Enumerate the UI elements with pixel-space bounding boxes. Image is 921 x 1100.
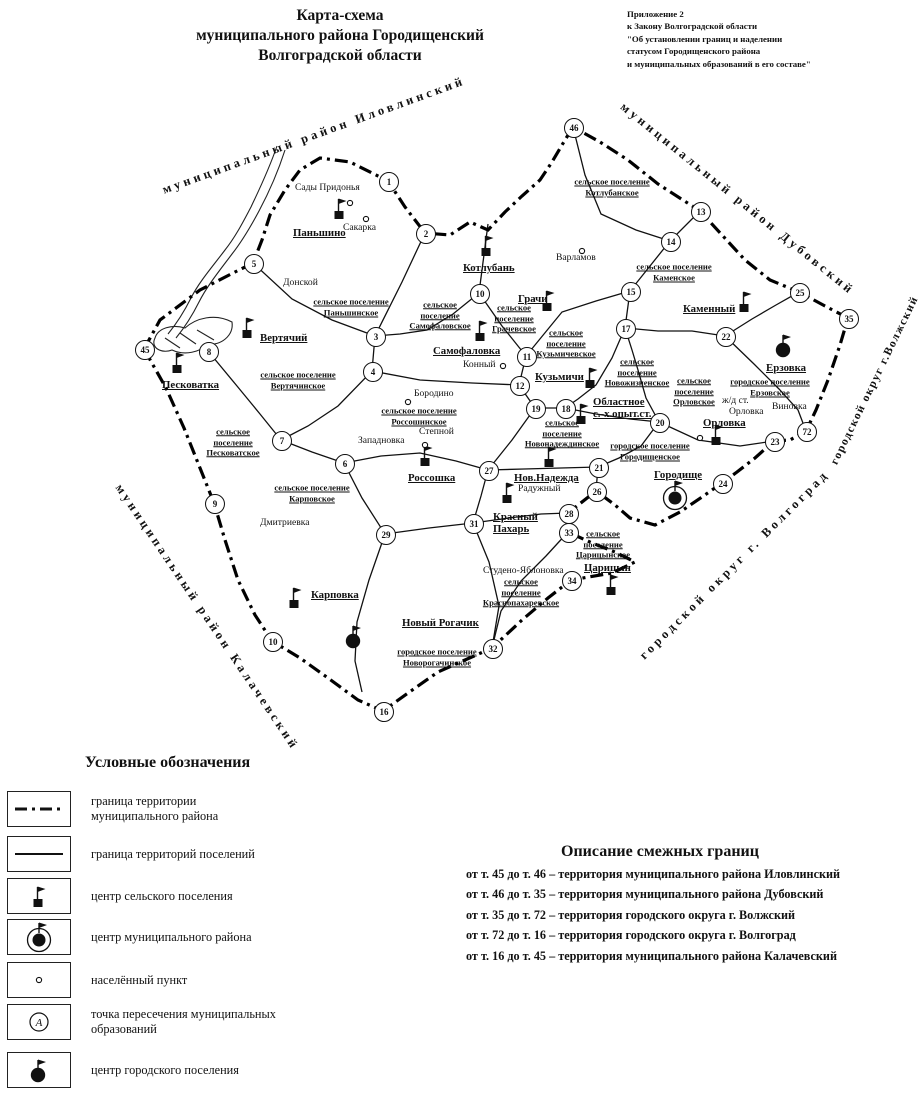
flag-icon <box>287 586 304 609</box>
boundary-point-35: 35 <box>839 309 859 329</box>
map-sheet: Карта-схемамуниципального района Городищ… <box>0 0 921 1100</box>
legend-item-label: центр муниципального района <box>91 930 381 945</box>
district-boundary-line-icon <box>7 791 71 827</box>
settlement-area-label: сельское поселение Котлубанское <box>574 177 649 198</box>
rural-center-marker <box>170 351 187 379</box>
boundary-point-9: 9 <box>205 494 225 514</box>
settlement-center-label: Песковатка <box>162 379 219 391</box>
legend-title: Условные обозначения <box>85 754 250 772</box>
boundary-point-13: 13 <box>691 202 711 222</box>
settlement-area-label: сельское поселение Песковатское <box>206 426 259 458</box>
settlement-area-label: городское поселение Новорогачинское <box>397 647 476 668</box>
village-marker <box>362 210 370 228</box>
town-center-marker <box>775 333 794 363</box>
rural-center-marker <box>604 573 621 601</box>
district-center-symbol-icon <box>7 919 71 955</box>
village-label: Сады Придонья <box>295 183 360 194</box>
rural-center-marker <box>287 586 304 614</box>
village-dot-icon <box>362 215 370 223</box>
district-center-marker <box>660 479 690 516</box>
village-label: Радужный <box>518 484 561 495</box>
boundary-point-24: 24 <box>713 474 733 494</box>
legend-item: граница территорий поселений <box>7 836 381 872</box>
rural-center-marker <box>737 290 754 318</box>
flag-icon <box>540 289 557 312</box>
boundary-point-8: 8 <box>199 342 219 362</box>
rural-center-marker <box>479 234 496 262</box>
neighbor-territory-label: муниципальный район Иловлинский <box>160 74 467 198</box>
village-label: Студено-Яблоновка <box>483 566 564 577</box>
flag-icon <box>170 351 187 374</box>
settlement-center-label: Россошка <box>408 472 455 484</box>
settlement-center-label: Каменный <box>683 303 735 315</box>
settlement-center-label: Красный Пахарь <box>493 511 538 535</box>
village-dot-icon <box>404 398 412 406</box>
boundary-point-32: 32 <box>483 639 503 659</box>
village-label: Орловка <box>729 407 764 418</box>
settlement-center-label: Ерзовка <box>766 362 806 374</box>
rural-center-marker <box>583 366 600 394</box>
settlement-area-label: сельское поселение Россошинское <box>381 406 456 427</box>
flag-icon <box>500 481 517 504</box>
village-label: Конный <box>463 360 496 371</box>
village-marker <box>404 393 412 411</box>
boundary-point-16: 16 <box>374 702 394 722</box>
boundary-point-31: 31 <box>464 514 484 534</box>
border-desc-title: Описание смежных границ <box>470 843 850 861</box>
border-desc-line: от т. 16 до т. 45 – территория муниципал… <box>466 946 840 966</box>
boundary-point-7: 7 <box>272 431 292 451</box>
village-label: ж/д ст. <box>722 396 749 407</box>
settlement-center-label: Самофаловка <box>433 345 500 357</box>
settlement-boundary-line-icon <box>7 836 71 872</box>
boundary-point-45: 45 <box>135 340 155 360</box>
boundary-point-4: 4 <box>363 362 383 382</box>
settlement-area-label: сельское поселение Карповское <box>274 483 349 504</box>
village-marker <box>696 429 704 447</box>
boundary-point-33: 33 <box>559 523 579 543</box>
flag-icon <box>31 885 48 908</box>
boundary-point-27: 27 <box>479 461 499 481</box>
border-desc-line: от т. 45 до т. 46 – территория муниципал… <box>466 864 840 884</box>
flag-icon <box>542 445 559 468</box>
flag-icon <box>709 423 726 446</box>
town-center-symbol-icon <box>7 1052 71 1088</box>
legend-item-label: точка пересечения муниципальных образова… <box>91 1007 381 1037</box>
village-dot-icon <box>35 976 43 984</box>
settlement-center-label: Паньшино <box>293 227 346 239</box>
village-marker <box>499 357 507 375</box>
boundary-point-46: 46 <box>564 118 584 138</box>
legend-item: граница территории муниципального района <box>7 791 381 827</box>
boundary-point-17: 17 <box>616 319 636 339</box>
town-flag-icon <box>30 1058 49 1083</box>
settlement-center-label: Вертячий <box>260 332 307 344</box>
settlement-center-label: Новый Рогачик <box>402 617 479 629</box>
settlement-center-label: Кузьмичи <box>535 371 584 383</box>
border-desc-line: от т. 72 до т. 16 – территория городског… <box>466 925 840 945</box>
border-desc-line: от т. 46 до т. 35 – территория муниципал… <box>466 884 840 904</box>
boundary-point-28: 28 <box>559 504 579 524</box>
village-dot-icon <box>696 434 704 442</box>
rural-center-marker <box>500 481 517 509</box>
boundary-point-6: 6 <box>335 454 355 474</box>
district-center-icon <box>24 921 54 953</box>
rural-center-flag-icon <box>7 878 71 914</box>
flag-icon <box>604 573 621 596</box>
village-dot-icon <box>346 199 354 207</box>
village-marker <box>346 194 354 212</box>
rural-center-marker <box>709 423 726 451</box>
border-desc-line: от т. 35 до т. 72 – территория городског… <box>466 905 840 925</box>
village-dot-icon <box>578 247 586 255</box>
boundary-point-26: 26 <box>587 482 607 502</box>
settlement-area-label: сельское поселение Орловское <box>673 375 715 407</box>
settlement-area-label: сельское поселение Паньшинское <box>313 297 388 318</box>
settlement-area-label: городское поселение Городищенское <box>610 441 689 462</box>
settlement-center-label: Котлубань <box>463 262 515 274</box>
boundary-point-3: 3 <box>366 327 386 347</box>
legend-item: населённый пункт <box>7 962 381 998</box>
svg-text:А: А <box>35 1017 43 1029</box>
village-label: Варламов <box>556 253 596 264</box>
boundary-point-11: 11 <box>517 347 537 367</box>
rural-center-marker <box>540 289 557 317</box>
legend-item-label: центр городского поселения <box>91 1063 381 1078</box>
legend-item-label: граница территории муниципального района <box>91 794 381 824</box>
flag-icon <box>240 316 257 339</box>
legend-item: центр муниципального района <box>7 919 381 955</box>
settlement-area-label: сельское поселение Царицынское <box>576 528 630 560</box>
boundary-point-25: 25 <box>790 283 810 303</box>
boundary-point-20: 20 <box>650 413 670 433</box>
settlement-area-label: сельское поселение Новожизненское <box>605 356 670 388</box>
village-label: Дмитриевка <box>260 518 310 529</box>
village-dot-icon <box>7 962 71 998</box>
boundary-point-5: 5 <box>244 254 264 274</box>
district-center-icon <box>660 479 690 511</box>
rural-center-marker <box>542 445 559 473</box>
boundary-point-12: 12 <box>510 376 530 396</box>
boundary-point-19: 19 <box>526 399 546 419</box>
legend-item: центр сельского поселения <box>7 878 381 914</box>
boundary-point-18: 18 <box>556 399 576 419</box>
village-label: Донской <box>283 278 318 289</box>
village-dot-icon <box>499 362 507 370</box>
settlement-center-label: Областное с.-х.опыт.ст. <box>593 396 651 420</box>
town-center-marker <box>345 624 364 654</box>
village-label: Западновка <box>358 436 404 447</box>
map-canvas: муниципальный район Иловлинскиймуниципал… <box>0 0 921 790</box>
settlement-area-label: сельское поселение Вертячинское <box>260 370 335 391</box>
boundary-point-10: 10 <box>470 284 490 304</box>
settlement-area-label: сельское поселение Кузьмичевское <box>536 327 595 359</box>
border-desc-lines: от т. 45 до т. 46 – территория муниципал… <box>466 864 840 966</box>
legend-item-label: центр сельского поселения <box>91 889 381 904</box>
boundary-point-72: 72 <box>797 422 817 442</box>
flag-icon <box>583 366 600 389</box>
boundary-point-22: 22 <box>716 327 736 347</box>
settlement-area-label: сельское поселение Каменское <box>636 262 711 283</box>
town-flag-icon <box>345 624 364 649</box>
boundary-point-21: 21 <box>589 458 609 478</box>
village-dot-icon <box>421 441 429 449</box>
village-label: Виновка <box>772 402 807 413</box>
intersection-point-icon: А <box>7 1004 71 1040</box>
settlement-center-label: Карповка <box>311 589 359 601</box>
flag-icon <box>479 234 496 257</box>
legend-item: Аточка пересечения муниципальных образов… <box>7 1004 381 1040</box>
flag-icon <box>574 402 591 425</box>
village-marker <box>421 436 429 454</box>
boundary-point-2: 2 <box>416 224 436 244</box>
boundary-point-1: 1 <box>379 172 399 192</box>
rural-center-marker <box>473 319 490 347</box>
rural-center-marker <box>574 402 591 430</box>
legend-item-label: граница территорий поселений <box>91 847 381 862</box>
village-label: Бородино <box>414 389 454 400</box>
boundary-point-29: 29 <box>376 525 396 545</box>
settlement-area-label: сельское поселение Самофаловское <box>409 299 470 331</box>
flag-icon <box>473 319 490 342</box>
rural-center-marker <box>240 316 257 344</box>
boundary-point-14: 14 <box>661 232 681 252</box>
town-flag-icon <box>775 333 794 358</box>
flag-icon <box>737 290 754 313</box>
boundary-point-10: 10 <box>263 632 283 652</box>
settlement-area-label: сельское поселение Грачевское <box>492 302 536 334</box>
legend-item: центр городского поселения <box>7 1052 381 1088</box>
boundary-point-34: 34 <box>562 571 582 591</box>
boundary-point-23: 23 <box>765 432 785 452</box>
settlement-area-label: сельское поселение Краснопахаревское <box>483 576 559 608</box>
legend-item-label: населённый пункт <box>91 973 381 988</box>
village-marker <box>578 242 586 260</box>
boundary-point-15: 15 <box>621 282 641 302</box>
